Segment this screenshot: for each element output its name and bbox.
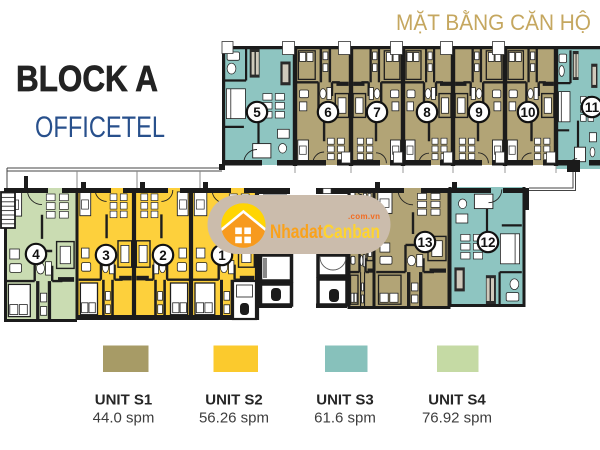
svg-text:11: 11 <box>585 100 600 115</box>
svg-text:UNIT S4: UNIT S4 <box>428 392 486 409</box>
svg-text:7: 7 <box>373 105 381 120</box>
svg-text:61.6 spm: 61.6 spm <box>314 410 376 427</box>
svg-text:2: 2 <box>159 248 167 263</box>
svg-text:BLOCK A: BLOCK A <box>16 58 158 99</box>
svg-text:6: 6 <box>324 105 332 120</box>
svg-text:5: 5 <box>253 105 261 120</box>
svg-text:10: 10 <box>520 105 535 120</box>
svg-text:44.0 spm: 44.0 spm <box>93 410 155 427</box>
svg-text:UNIT S3: UNIT S3 <box>316 392 374 409</box>
svg-text:3: 3 <box>102 248 110 263</box>
svg-text:8: 8 <box>423 105 431 120</box>
svg-text:UNIT S2: UNIT S2 <box>205 392 263 409</box>
svg-text:OFFICETEL: OFFICETEL <box>35 111 165 144</box>
svg-text:56.26 spm: 56.26 spm <box>199 410 269 427</box>
svg-text:UNIT S1: UNIT S1 <box>95 392 153 409</box>
svg-text:.com.vn: .com.vn <box>348 212 380 221</box>
svg-text:4: 4 <box>32 247 40 262</box>
svg-text:76.92 spm: 76.92 spm <box>422 410 492 427</box>
svg-text:MẶT BẰNG CĂN HỘ: MẶT BẰNG CĂN HỘ <box>396 10 591 35</box>
svg-text:9: 9 <box>475 105 483 120</box>
svg-text:13: 13 <box>417 235 433 250</box>
svg-text:12: 12 <box>480 235 495 250</box>
svg-text:NhadatCanban: NhadatCanban <box>270 221 380 243</box>
